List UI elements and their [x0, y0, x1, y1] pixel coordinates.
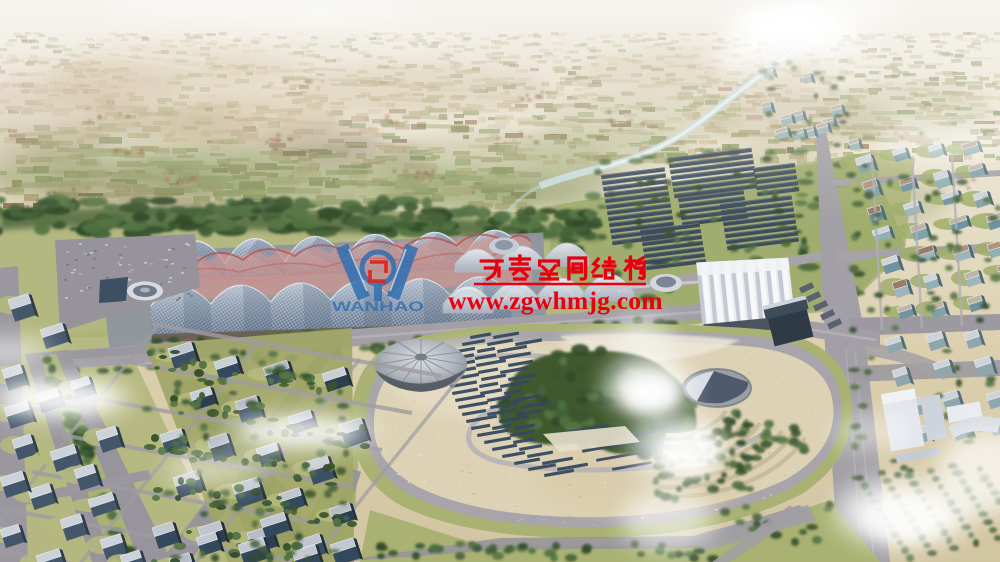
svg-text:www.zgwhmjg.com: www.zgwhmjg.com	[448, 286, 663, 315]
svg-text:WANHAO: WANHAO	[332, 299, 424, 314]
